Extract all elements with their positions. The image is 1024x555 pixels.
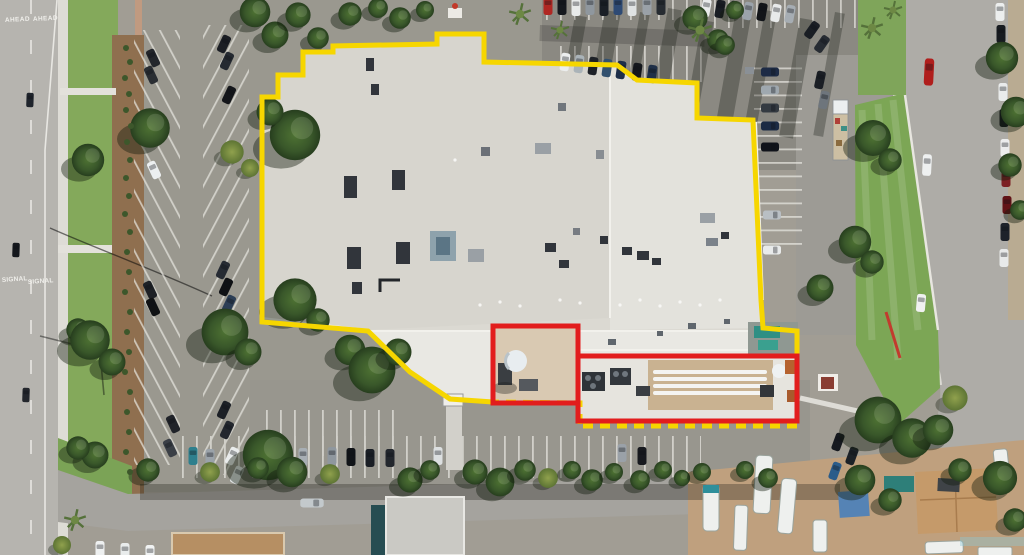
road-text-ahead-2: AHEAD bbox=[33, 15, 58, 23]
aerial-site-photo: AHEAD AHEAD SIGNAL SIGNAL bbox=[0, 0, 1024, 555]
road-text-ahead-1: AHEAD bbox=[5, 16, 30, 24]
aerial-scene: AHEAD AHEAD SIGNAL SIGNAL bbox=[0, 0, 1024, 555]
watermark-bar bbox=[960, 537, 1024, 546]
